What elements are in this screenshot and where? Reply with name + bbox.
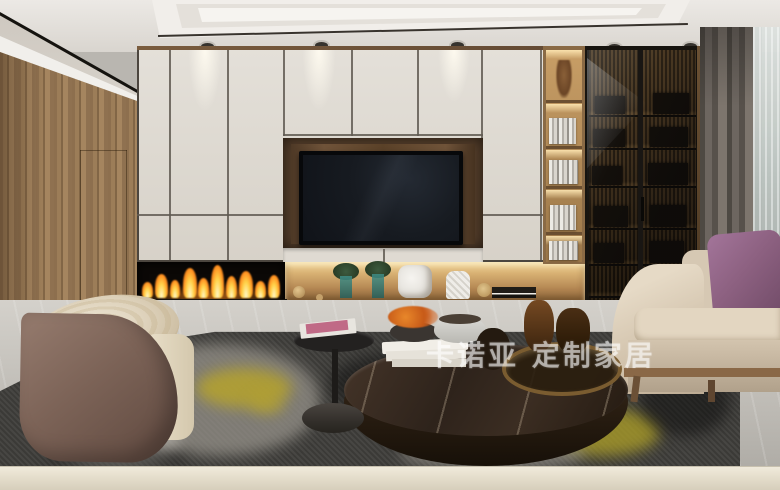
books (549, 241, 578, 260)
flame (268, 275, 280, 298)
tv-screen-glare (303, 155, 459, 241)
coffee-table (342, 300, 632, 470)
watermark-text: 卡诺亚 定制家居 (426, 339, 656, 372)
cabinet-seam (227, 50, 229, 262)
cabinet-seam (481, 214, 543, 216)
shelf-board (546, 146, 582, 149)
shelf-light (546, 104, 582, 113)
rug-yellow-accent (250, 394, 284, 414)
foreground-surface (0, 466, 780, 490)
flame (255, 281, 266, 298)
side-table-base (302, 403, 364, 433)
decor-branch (556, 60, 572, 98)
shelf-board (546, 232, 582, 235)
hidden-door-seam (80, 150, 127, 151)
gold-ball-ornament (293, 286, 305, 298)
shelf-light (546, 190, 582, 199)
cabinet-seam (283, 50, 285, 136)
cabinet-seam (383, 249, 385, 262)
spotlight-cone (182, 50, 228, 136)
orange-flowers (388, 306, 438, 328)
book-stack (492, 287, 536, 298)
plant-glass-vase (372, 274, 384, 298)
cabinet-seam (540, 50, 542, 262)
curved-armchair (18, 292, 196, 474)
books (549, 118, 576, 144)
glass-door-handle (641, 197, 644, 221)
plant-glass-vase (340, 276, 352, 298)
watermark: 卡诺亚 定制家居 (426, 334, 656, 374)
books (549, 160, 578, 184)
side-table (290, 315, 382, 441)
cabinet-seam (351, 50, 353, 136)
shelf-board (546, 100, 582, 103)
shelf-light (546, 150, 582, 159)
flame (198, 278, 209, 298)
flame (211, 265, 224, 298)
shelf-board (546, 186, 582, 189)
books (550, 205, 576, 230)
spotlight-cone (432, 50, 476, 122)
sofa-leg (708, 380, 715, 402)
cabinet-seam (283, 134, 483, 136)
shelf-light (546, 50, 582, 59)
white-sculpture-vase (398, 265, 432, 298)
living-room-rendering: 卡诺亚 定制家居 (0, 0, 780, 490)
hidden-door-seam (80, 150, 81, 310)
cabinet-seam (137, 214, 283, 216)
flame (239, 271, 253, 298)
decor-niche (285, 262, 585, 301)
cabinet-seam (417, 50, 419, 136)
flame (226, 276, 237, 298)
cabinet-seam (169, 50, 171, 262)
bowl-contents (439, 314, 481, 324)
white-textured-vase (446, 271, 470, 299)
gold-flower-ornament (477, 283, 491, 297)
spotlight-cone (296, 50, 342, 134)
